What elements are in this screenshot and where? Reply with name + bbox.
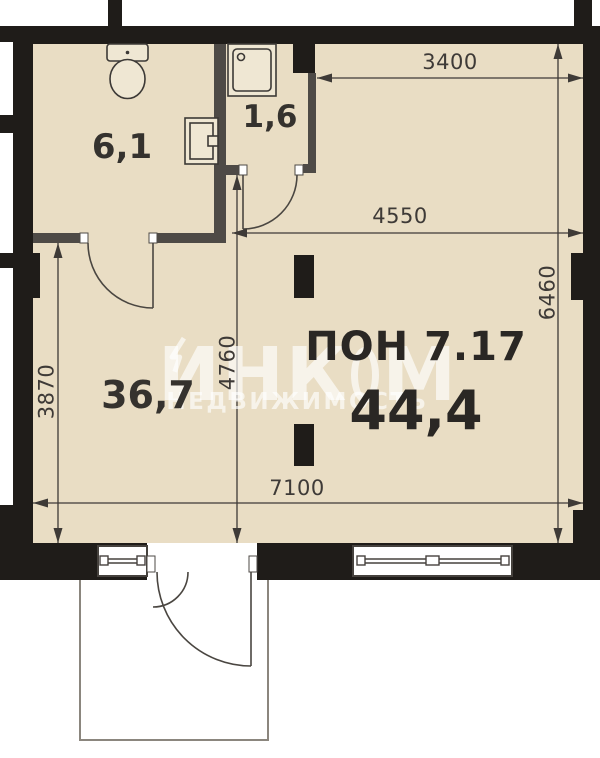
wall-right — [583, 26, 600, 580]
room-label-shower: 1,6 — [238, 102, 302, 133]
room-label-living: 36,7 — [93, 376, 203, 414]
room-label-bathroom: 6,1 — [82, 130, 162, 164]
wall-bump-left — [33, 253, 40, 298]
wall-shower-right — [308, 73, 316, 172]
dimension-text-bottom: 7100 — [197, 478, 397, 499]
wall-stub-left-d — [0, 505, 13, 545]
door-post — [295, 165, 303, 175]
dimension-text-top: 3400 — [350, 52, 550, 73]
wall-shower-bottom — [226, 165, 239, 175]
sink-icon — [185, 118, 218, 164]
door-post — [147, 556, 155, 572]
wall-left — [13, 26, 33, 580]
door-post — [249, 556, 257, 572]
wall-shower-right-foot — [303, 164, 316, 173]
column-right-lower — [573, 510, 583, 543]
door-post — [149, 233, 157, 243]
balcony — [80, 558, 268, 740]
window-right — [353, 546, 512, 576]
dimension-text-middle: 4550 — [300, 206, 500, 227]
balcony-door-opening — [147, 543, 257, 580]
door-post — [80, 233, 88, 243]
unit-label: ПОН 7.17 — [300, 327, 532, 367]
door-post — [239, 165, 247, 175]
wall-block-shower — [293, 26, 315, 73]
unit-total-area: 44,4 — [343, 384, 489, 438]
window-left — [98, 546, 147, 576]
wall-stub-top-right — [574, 0, 592, 26]
wall-stub-left-a — [0, 26, 13, 42]
column-center-lower — [294, 424, 314, 466]
wall-stub-top — [108, 0, 122, 26]
wall-stub-left-b — [0, 115, 13, 133]
dimension-text-left: 3870 — [37, 332, 58, 452]
dimension-text-right: 6460 — [538, 233, 559, 353]
floor-plan: ИНК М НЕДВИЖИМОСТЬ 6,1 1,6 36,7 ПОН 7.17… — [0, 0, 600, 758]
column-center-upper — [294, 255, 314, 298]
dimension-text-center: 4760 — [218, 303, 239, 423]
column-right-upper — [571, 253, 583, 300]
wall-stub-left-c — [0, 253, 13, 268]
wall-bathroom-bottom-right — [157, 233, 226, 243]
shower-icon — [228, 44, 276, 96]
toilet-icon — [107, 44, 148, 99]
wall-bathroom-bottom-left — [33, 233, 80, 243]
